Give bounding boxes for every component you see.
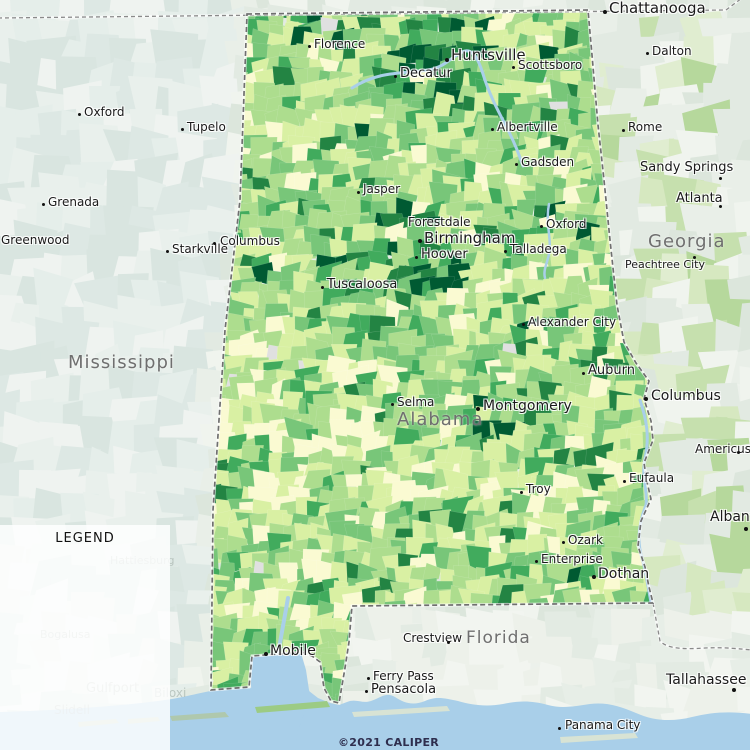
legend-title: LEGEND: [0, 531, 170, 546]
legend-panel: LEGEND 5-Digit ZIP Code State Median Hou…: [0, 525, 170, 750]
copyright-attribution: ©2021 CALIPER: [338, 736, 439, 749]
map-viewport[interactable]: ChattanoogaDaltonRomeFlorenceHuntsvilleD…: [0, 0, 750, 750]
